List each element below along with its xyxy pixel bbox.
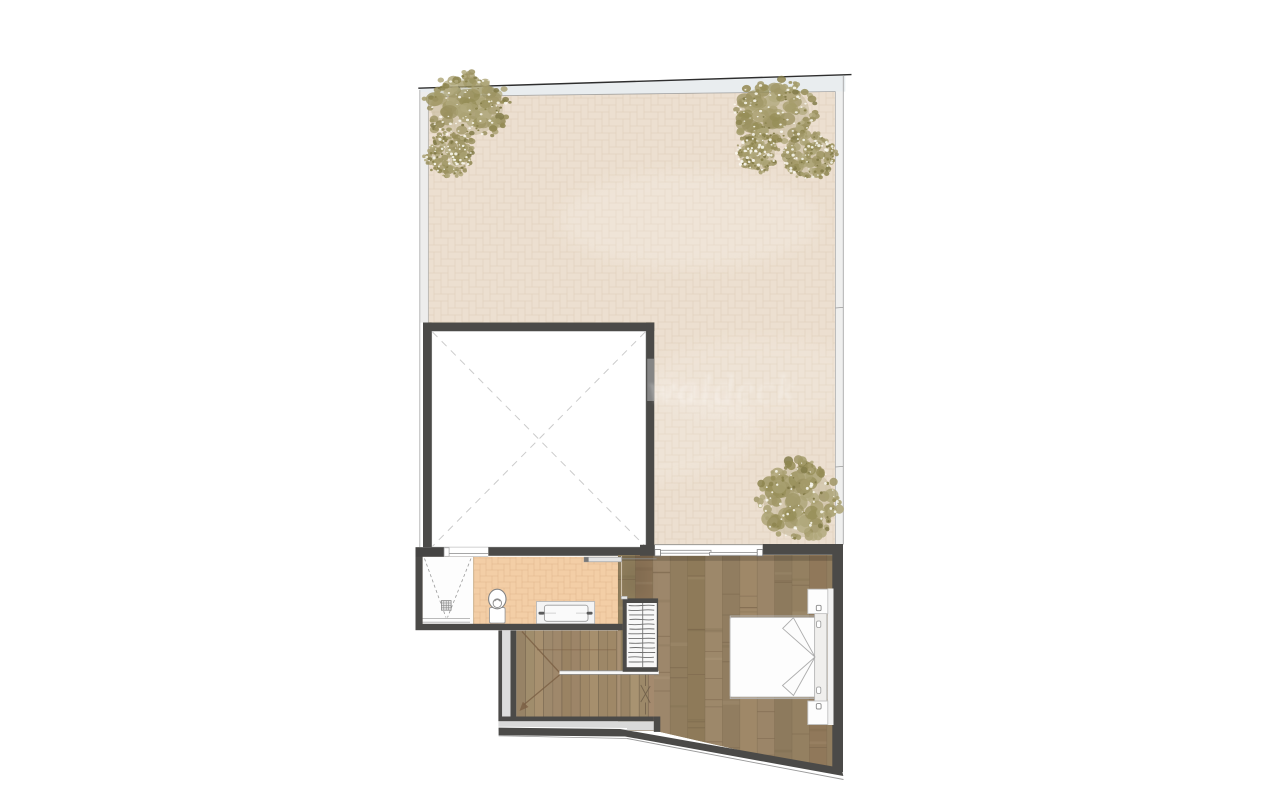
svg-text:waldeck: waldeck bbox=[648, 366, 796, 412]
